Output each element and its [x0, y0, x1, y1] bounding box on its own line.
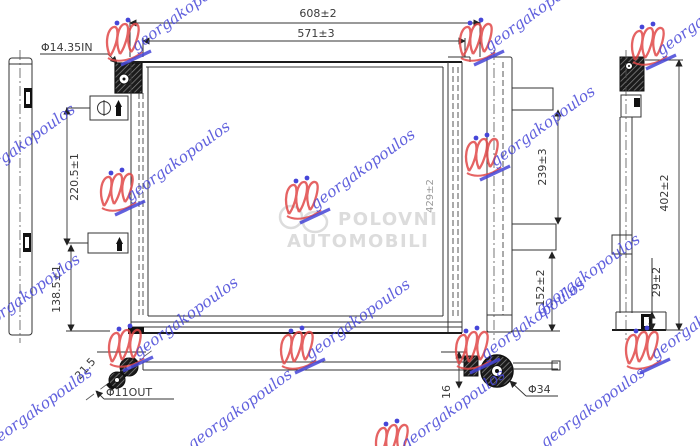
drawing-svg: POLOVNI AUTOMOBILI 608±2 571±3 Φ14.35IN [0, 0, 700, 446]
dim-core-height: 429±2 [425, 179, 436, 213]
dim-left-upper: 220.5±1 [68, 153, 81, 201]
watermark-script: georgakopoulos [184, 365, 296, 446]
watermark-script: georgakopoulos [397, 365, 509, 446]
watermark-script: georgakopoulos [653, 0, 700, 59]
watermark-script: georgakopoulos [128, 0, 240, 55]
inlet-callout: Φ14.35IN [40, 41, 117, 63]
watermark-script: georgakopoulos [481, 0, 593, 55]
dim-inlet-label: Φ14.35IN [41, 41, 93, 54]
right-side-view: 402±2 29±2 [612, 50, 683, 340]
condenser-technical-drawing: POLOVNI AUTOMOBILI 608±2 571±3 Φ14.35IN [0, 0, 700, 446]
watermark-script: georgakopoulos [0, 363, 96, 446]
dim-pipe-diameter: Φ34 [528, 383, 551, 396]
mount-bracket [512, 224, 556, 250]
watermark-script: georgakopoulos [302, 275, 414, 363]
brand-text-line1: POLOVNI [338, 209, 438, 230]
dim-overall-height: 402±2 [658, 174, 671, 211]
dim-outlet-label: Φ11OUT [106, 386, 152, 399]
dim-offset: 16 [440, 385, 453, 399]
watermark-script: georgakopoulos [307, 125, 419, 213]
dim-overall-width: 608±2 [299, 7, 336, 20]
brand-text-line2: AUTOMOBILI [287, 231, 429, 252]
top-fitting [620, 57, 644, 91]
watermark-script: georgakopoulos [130, 273, 242, 361]
left-dimensions: 220.5±1 138.5±1 [50, 108, 110, 331]
mount-bracket [512, 88, 553, 110]
mount-bracket [90, 96, 128, 120]
brand-watermark: POLOVNI AUTOMOBILI [280, 206, 438, 252]
watermark-script: georgakopoulos [537, 363, 649, 446]
dim-right-upper: 239±3 [536, 148, 549, 185]
dim-depth: 29±2 [650, 267, 663, 297]
watermark-script: georgakopoulos [532, 230, 644, 318]
dim-core-width: 571±3 [297, 27, 334, 40]
